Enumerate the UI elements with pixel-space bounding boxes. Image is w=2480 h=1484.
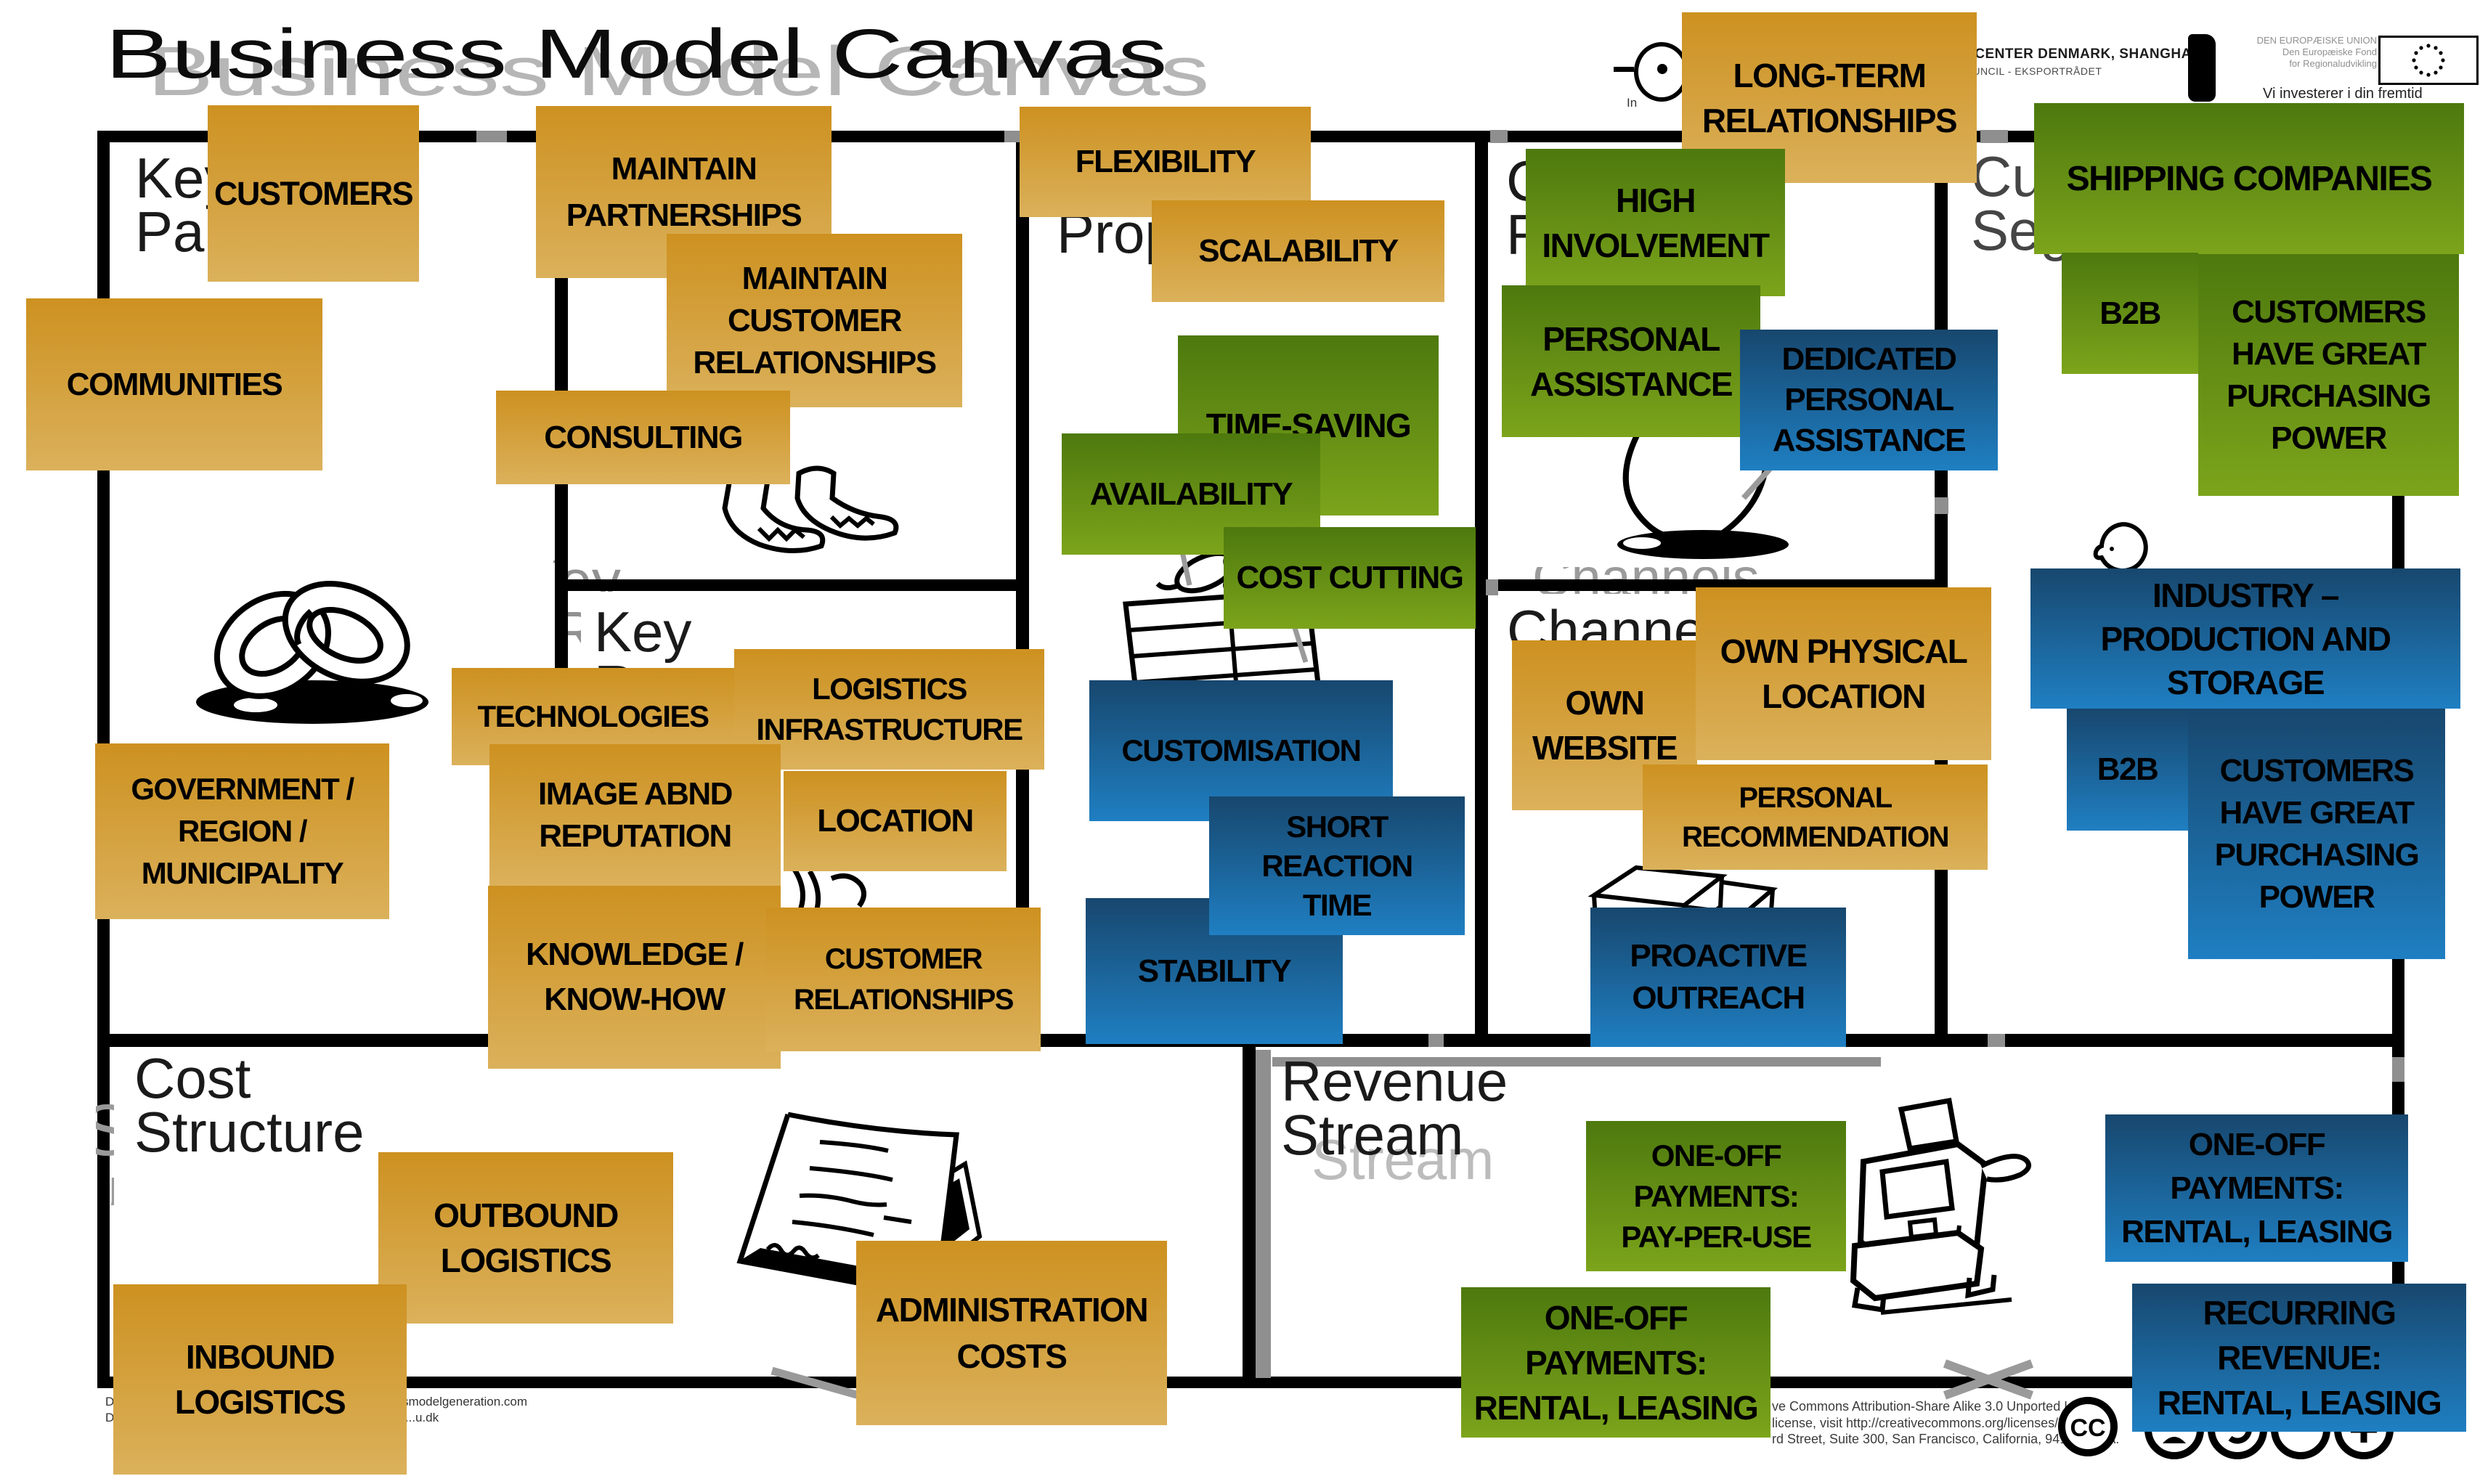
svg-text:CC: CC	[2070, 1414, 2105, 1442]
